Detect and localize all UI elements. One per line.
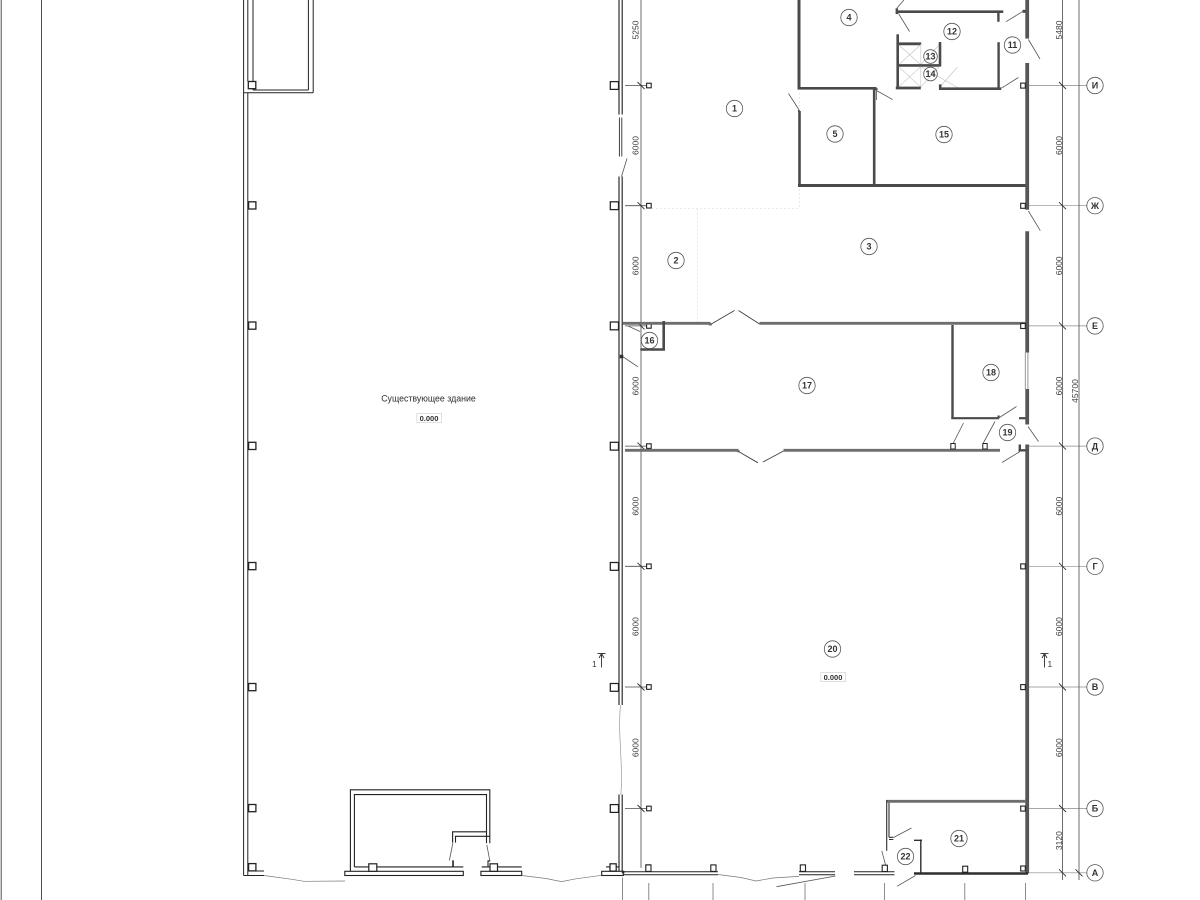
svg-text:6000: 6000 (1054, 738, 1064, 757)
svg-text:6000: 6000 (1054, 376, 1064, 395)
svg-text:6000: 6000 (631, 617, 641, 636)
svg-text:15: 15 (939, 130, 949, 140)
svg-text:18: 18 (986, 368, 996, 378)
svg-text:12: 12 (947, 27, 957, 37)
svg-text:14: 14 (925, 69, 935, 79)
svg-text:3120: 3120 (1054, 831, 1064, 850)
svg-text:Ж: Ж (1090, 201, 1100, 211)
svg-text:11: 11 (1008, 40, 1018, 50)
svg-text:И: И (1092, 81, 1098, 91)
svg-text:6000: 6000 (631, 496, 641, 515)
svg-text:6000: 6000 (1054, 496, 1064, 515)
svg-text:20: 20 (827, 644, 837, 654)
svg-text:17: 17 (802, 381, 812, 391)
svg-text:6000: 6000 (631, 256, 641, 275)
svg-text:0.000: 0.000 (824, 673, 843, 682)
svg-text:16: 16 (644, 336, 654, 346)
svg-text:13: 13 (925, 52, 935, 62)
svg-text:21: 21 (954, 834, 964, 844)
svg-text:2: 2 (673, 256, 678, 266)
svg-text:5480: 5480 (1054, 20, 1064, 39)
svg-text:19: 19 (1002, 428, 1012, 438)
svg-text:6000: 6000 (631, 376, 641, 395)
svg-text:0.000: 0.000 (420, 414, 439, 423)
svg-text:5: 5 (832, 129, 837, 139)
svg-text:6000: 6000 (1054, 136, 1064, 155)
svg-text:45700: 45700 (1070, 379, 1080, 403)
svg-text:1: 1 (732, 104, 737, 114)
svg-text:Е: Е (1092, 321, 1098, 331)
svg-text:6000: 6000 (1054, 256, 1064, 275)
svg-text:Г: Г (1092, 562, 1097, 572)
svg-text:6000: 6000 (631, 738, 641, 757)
svg-text:А: А (1092, 868, 1099, 878)
svg-text:Д: Д (1092, 441, 1099, 451)
svg-text:6000: 6000 (631, 136, 641, 155)
svg-text:1: 1 (1048, 659, 1053, 669)
svg-text:Б: Б (1092, 804, 1099, 814)
svg-text:6000: 6000 (1054, 617, 1064, 636)
svg-text:1: 1 (592, 659, 597, 669)
svg-text:3: 3 (866, 242, 871, 252)
svg-text:Существующее здание: Существующее здание (381, 394, 476, 404)
svg-text:В: В (1092, 682, 1099, 692)
svg-text:5250: 5250 (631, 20, 641, 39)
svg-text:4: 4 (846, 13, 851, 23)
svg-text:22: 22 (900, 852, 910, 862)
